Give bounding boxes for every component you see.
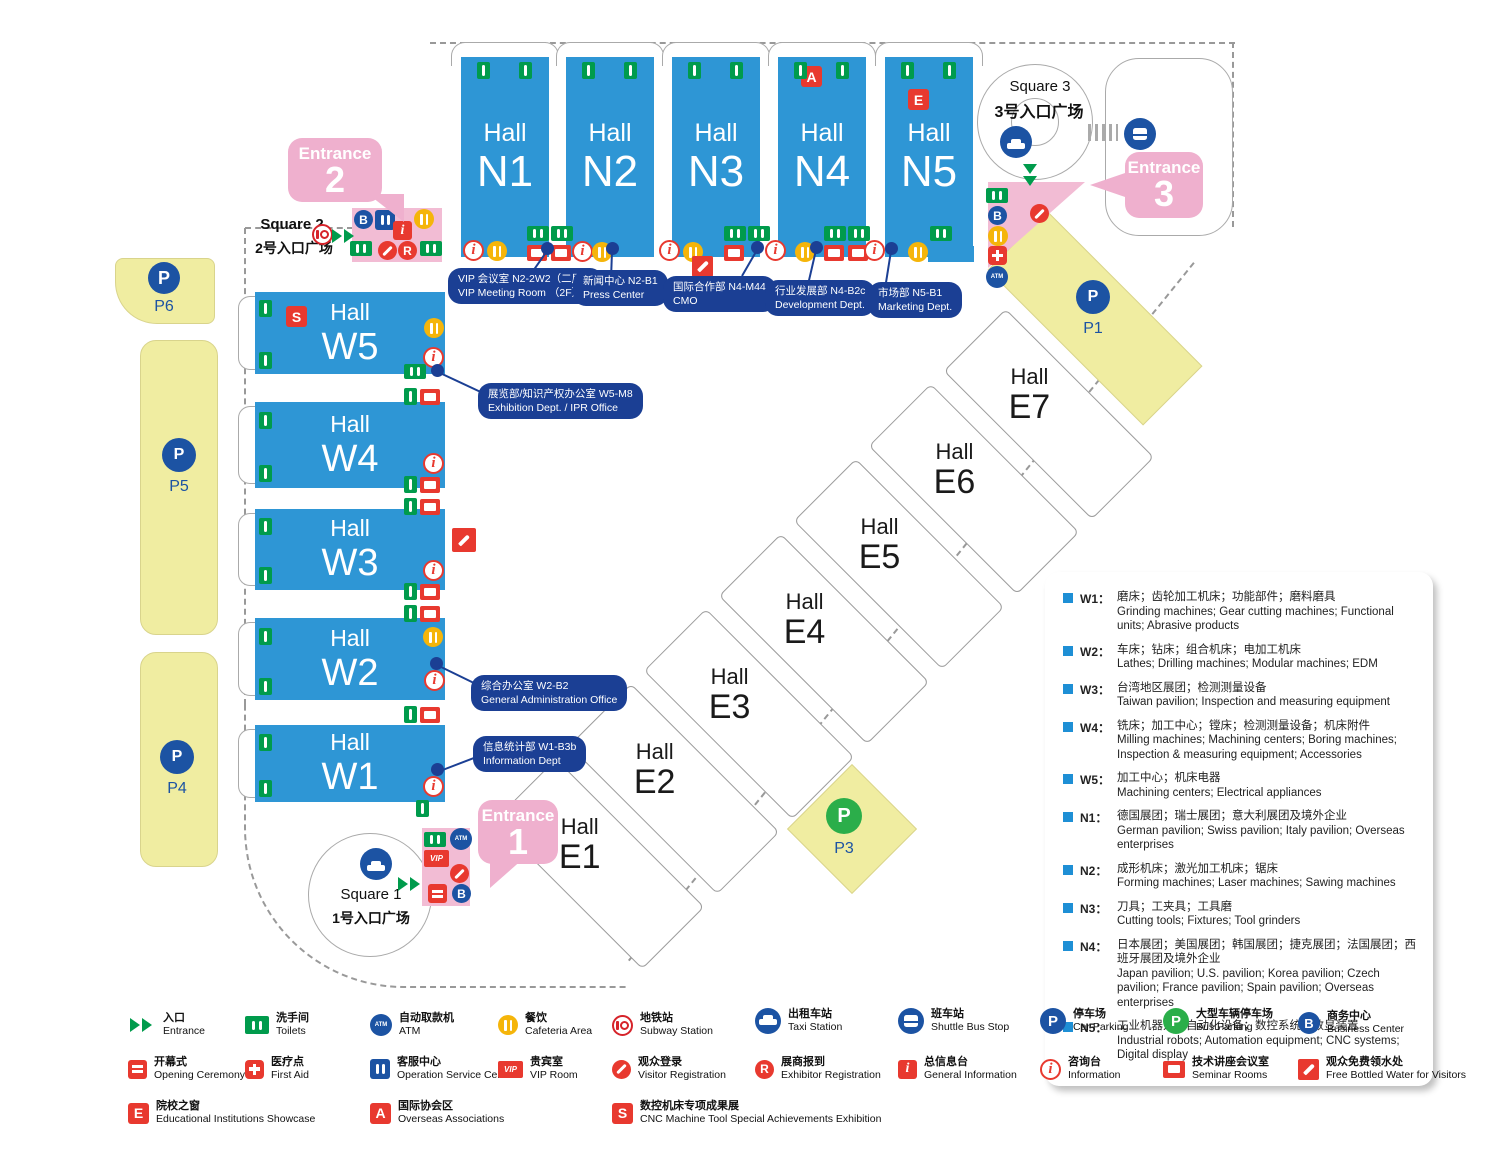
legend-en: Lathes; Drilling machines; Modular machi… xyxy=(1117,658,1378,670)
legend-item-taxi: 出租车站Taxi Station xyxy=(755,1008,842,1034)
hall-code: E7 xyxy=(986,389,1072,425)
leader-line xyxy=(610,251,613,272)
callout-press-center: 新闻中心 N2-B1 Press Center xyxy=(573,270,668,306)
business-center-icon: B xyxy=(452,884,471,903)
legend-text: 成形机床；激光加工机床；锯床Forming machines; Laser ma… xyxy=(1117,862,1396,891)
opening-ceremony-icon xyxy=(428,884,447,903)
entrance2-balloon-tail xyxy=(368,194,404,222)
hall-code: W2 xyxy=(322,652,379,694)
leader-line xyxy=(440,372,481,392)
callout-general-administration-office: 综合办公室 W2-B2 General Administration Offic… xyxy=(471,675,627,711)
legend-entry-w2: W2：车床；钻床；组合机床；电加工机床Lathes; Drilling mach… xyxy=(1063,643,1417,672)
callout-marketing-dept: 市场部 N5-B1 Marketing Dept. xyxy=(868,282,962,318)
legend-zh: 开幕式 xyxy=(154,1056,245,1069)
hall-word: Hall xyxy=(330,729,370,756)
first-aid-icon xyxy=(245,1060,264,1079)
legend-en: Overseas Associations xyxy=(398,1113,504,1126)
callout-en: General Administration Office xyxy=(481,693,617,707)
bus-parking-icon: P xyxy=(1163,1008,1189,1034)
toilets-icon xyxy=(259,300,272,317)
legend-zh: 刀具；工夹具；工具磨 xyxy=(1117,901,1232,913)
legend-en: Opening Ceremony xyxy=(154,1069,245,1082)
hall-code: E2 xyxy=(612,764,698,800)
legend-zh: 贵宾室 xyxy=(530,1056,578,1069)
legend-item-educational: E院校之窗Educational Institutions Showcase xyxy=(128,1100,315,1126)
legend-zh: 总信息台 xyxy=(924,1056,1017,1069)
legend-en: Machining centers; Electrical appliances xyxy=(1117,787,1322,799)
hall-word: Hall xyxy=(588,118,631,148)
information-icon: i xyxy=(424,670,445,691)
legend-item-visitor-registration: 观众登录Visitor Registration xyxy=(612,1056,726,1082)
legend-zh: 咨询台 xyxy=(1068,1056,1121,1069)
legend-item-entrance: 入口Entrance xyxy=(128,1012,205,1038)
legend-en: Visitor Registration xyxy=(638,1069,726,1082)
cafeteria-icon xyxy=(487,241,507,261)
callout-zh: 信息统计部 W1-B3b xyxy=(483,740,576,754)
legend-text: 车床；钻床；组合机床；电加工机床Lathes; Drilling machine… xyxy=(1117,643,1378,672)
hall-code: E6 xyxy=(911,464,997,500)
callout-zh: 综合办公室 W2-B2 xyxy=(481,679,617,693)
toilets-icon xyxy=(724,226,746,241)
parking-label-p6: P6 xyxy=(146,298,182,316)
information-icon: i xyxy=(765,240,786,261)
hall-w5: HallW5 xyxy=(255,292,445,374)
legend-entry-w1: W1：磨床；齿轮加工机床；功能部件；磨料磨具Grinding machines;… xyxy=(1063,590,1417,634)
toilets-icon xyxy=(259,628,272,645)
leader-dot xyxy=(751,241,764,254)
hall-word: Hall xyxy=(762,589,848,614)
visitor-registration-icon xyxy=(612,1060,631,1079)
seminar-rooms-icon xyxy=(724,245,744,261)
parking-icon-p4: P xyxy=(160,740,194,774)
legend-text: 加工中心；机床电器Machining centers; Electrical a… xyxy=(1117,771,1322,800)
legend-zh: 加工中心；机床电器 xyxy=(1117,772,1221,784)
legend-text: 台湾地区展团；检测测量设备Taiwan pavilion; Inspection… xyxy=(1117,681,1390,710)
legend-item-general-information: i总信息台General Information xyxy=(898,1056,1017,1082)
legend-zh: 班车站 xyxy=(931,1008,1009,1021)
legend-en: Shuttle Bus Stop xyxy=(931,1021,1009,1034)
parking-label-p5: P5 xyxy=(160,478,198,496)
business-center-icon: B xyxy=(1298,1012,1320,1034)
hall-word: Hall xyxy=(986,364,1072,389)
entrance-arrows-icon xyxy=(396,876,424,892)
information-icon: i xyxy=(463,240,484,261)
entrance1-balloon: Entrance 1 xyxy=(478,800,558,864)
parking-label-p3: P3 xyxy=(828,840,860,858)
hall-code: N2 xyxy=(582,148,638,196)
legend-en: Business Center xyxy=(1327,1023,1404,1036)
legend-entry-w3: W3：台湾地区展团；检测测量设备Taiwan pavilion; Inspect… xyxy=(1063,681,1417,710)
legend-zh: 停车场 xyxy=(1073,1008,1128,1021)
legend-en: Free Bottled Water for Visitors xyxy=(1326,1069,1466,1082)
legend-item-operation-service: 客服中心Operation Service Centre xyxy=(370,1056,515,1082)
callout-en: Exhibition Dept. / IPR Office xyxy=(488,401,633,415)
toilets-icon xyxy=(404,364,426,379)
toilets-icon xyxy=(424,832,446,847)
legend-item-shuttle-bus: 班车站Shuttle Bus Stop xyxy=(898,1008,1009,1034)
information-icon: i xyxy=(659,240,680,261)
toilets-icon xyxy=(259,567,272,584)
general-information-icon: i xyxy=(393,221,412,240)
toilets-icon xyxy=(519,62,532,79)
legend-text: 德国展团；瑞士展团；意大利展团及境外企业German pavilion; Swi… xyxy=(1117,809,1417,853)
entrance-icon xyxy=(128,1017,156,1033)
entrance-number: 2 xyxy=(288,163,382,197)
toilets-icon xyxy=(930,226,952,241)
legend-en: First Aid xyxy=(271,1069,309,1082)
hall-word: Hall xyxy=(483,118,526,148)
callout-information-dept: 信息统计部 W1-B3b Information Dept xyxy=(473,736,586,772)
callout-en: Information Dept xyxy=(483,754,576,768)
entrance1-balloon-tail xyxy=(490,858,524,888)
legend-entry-n3: N3：刀具；工夹具；工具磨Cutting tools; Fixtures; To… xyxy=(1063,900,1417,929)
hall-code: N1 xyxy=(477,148,533,196)
legend-zh: 大型车辆停车场 xyxy=(1196,1008,1273,1021)
legend-item-subway: 地铁站Subway Station xyxy=(612,1012,713,1038)
callout-zh: 新闻中心 N2-B1 xyxy=(583,274,658,288)
legend-en: Subway Station xyxy=(640,1025,713,1038)
toilets-icon xyxy=(404,476,417,493)
exhibition-floor-plan: P P6 P P5 P P4 P P1 P P3 HallE1 HallE2 H… xyxy=(0,0,1500,1171)
callout-en: Press Center xyxy=(583,288,658,302)
toilets-icon xyxy=(420,241,442,256)
opening-ceremony-icon xyxy=(128,1060,147,1079)
hall-n2: HallN2 xyxy=(566,57,654,257)
legend-item-information: i咨询台Information xyxy=(1040,1056,1121,1082)
bullet-icon xyxy=(1063,684,1073,694)
legend-en: Taiwan pavilion; Inspection and measurin… xyxy=(1117,696,1390,708)
business-center-icon: B xyxy=(988,206,1007,225)
cafeteria-icon xyxy=(908,242,928,262)
legend-zh: 国际协会区 xyxy=(398,1100,504,1113)
toilets-icon xyxy=(477,62,490,79)
toilets-icon xyxy=(404,498,417,515)
toilets-icon xyxy=(848,226,870,241)
parking-icon-p3: P xyxy=(826,798,862,834)
hall-n5: HallN5 xyxy=(885,57,973,257)
hall-word: Hall xyxy=(694,118,737,148)
operation-service-icon xyxy=(370,1059,390,1079)
hall-word: Hall xyxy=(330,515,370,542)
toilets-icon xyxy=(350,241,372,256)
toilets-icon xyxy=(259,780,272,797)
legend-en: Entrance xyxy=(163,1025,205,1038)
shuttle-bus-icon xyxy=(1124,118,1156,150)
legend-entry-n1: N1：德国展团；瑞士展团；意大利展团及境外企业German pavilion; … xyxy=(1063,809,1417,853)
legend-en: Taxi Station xyxy=(788,1021,842,1034)
information-icon: i xyxy=(864,240,885,261)
visitor-registration-icon xyxy=(450,864,469,883)
legend-zh: 地铁站 xyxy=(640,1012,713,1025)
entrance3-balloon: Entrance 3 xyxy=(1125,152,1203,218)
visitor-registration-icon xyxy=(378,241,397,260)
toilets-icon xyxy=(551,226,573,241)
car-parking-icon: P xyxy=(1040,1008,1066,1034)
legend-entry-n4: N4：日本展团；美国展团；韩国展团；捷克展团；法国展团；西班牙展团及境外企业Ja… xyxy=(1063,938,1417,1011)
hall-word: Hall xyxy=(330,625,370,652)
cnc-exhibition-icon: S xyxy=(286,306,307,327)
square1-label-zh: 1号入口广场 xyxy=(318,908,424,928)
legend-zh: 洗手间 xyxy=(276,1012,309,1025)
legend-entry-w4: W4：铣床；加工中心；镗床；检测测量设备；机床附件Milling machine… xyxy=(1063,719,1417,763)
legend-text: 磨床；齿轮加工机床；功能部件；磨料磨具Grinding machines; Ge… xyxy=(1117,590,1417,634)
legend-item-atm: ATM自动取款机ATM xyxy=(370,1012,454,1038)
toilets-icon xyxy=(748,226,770,241)
entrance-arrows-icon xyxy=(1022,162,1038,190)
toilets-icon xyxy=(794,62,807,79)
legend-entry-w5: W5：加工中心；机床电器Machining centers; Electrica… xyxy=(1063,771,1417,800)
legend-code: W3： xyxy=(1080,681,1110,710)
square3-label-zh: 3号入口广场 xyxy=(983,98,1095,122)
vip-room-icon: VIP xyxy=(498,1061,523,1078)
legend-item-overseas-assoc: A国际协会区Overseas Associations xyxy=(370,1100,504,1126)
entrance3-balloon-tail xyxy=(1090,172,1128,198)
legend-zh: 车床；钻床；组合机床；电加工机床 xyxy=(1117,644,1301,656)
toilets-icon xyxy=(416,800,429,817)
free-water-icon xyxy=(1298,1059,1319,1080)
toilets-icon xyxy=(824,226,846,241)
legend-item-free-water: 观众免费领水处Free Bottled Water for Visitors xyxy=(1298,1056,1466,1082)
hall-word: Hall xyxy=(907,118,950,148)
taxi-station-icon xyxy=(755,1008,781,1034)
hall-code: W1 xyxy=(322,756,379,798)
seminar-rooms-icon xyxy=(420,707,440,723)
free-water-icon xyxy=(452,528,476,552)
legend-zh: 德国展团；瑞士展团；意大利展团及境外企业 xyxy=(1117,810,1347,822)
legend-text: 刀具；工夹具；工具磨Cutting tools; Fixtures; Tool … xyxy=(1117,900,1300,929)
overseas-associations-icon: A xyxy=(370,1103,391,1124)
toilets-icon xyxy=(259,352,272,369)
toilets-icon xyxy=(901,62,914,79)
entrance2-balloon: Entrance 2 xyxy=(288,138,382,202)
callout-en: Marketing Dept. xyxy=(878,300,952,314)
visitor-registration-icon xyxy=(1030,204,1049,223)
legend-code: N1： xyxy=(1080,809,1110,853)
legend-zh: 观众免费领水处 xyxy=(1326,1056,1466,1069)
legend-item-first-aid: 医疗点First Aid xyxy=(245,1056,309,1082)
cafeteria-icon xyxy=(424,318,444,338)
bullet-icon xyxy=(1063,941,1073,951)
toilets-icon xyxy=(259,412,272,429)
legend-en: Milling machines; Machining centers; Bor… xyxy=(1117,734,1397,761)
legend-entry-n2: N2：成形机床；激光加工机床；锯床Forming machines; Laser… xyxy=(1063,862,1417,891)
toilets-icon xyxy=(730,62,743,79)
bullet-icon xyxy=(1063,646,1073,656)
hall-code: W3 xyxy=(322,542,379,584)
legend-zh: 院校之窗 xyxy=(156,1100,315,1113)
educational-showcase-icon: E xyxy=(908,89,929,110)
legend-item-bus-parking: P大型车辆停车场Bus Parking xyxy=(1163,1008,1273,1034)
callout-zh: 行业发展部 N4-B2c xyxy=(775,284,865,298)
seminar-rooms-icon xyxy=(1163,1061,1185,1078)
legend-en: General Information xyxy=(924,1069,1017,1082)
callout-zh: 市场部 N5-B1 xyxy=(878,286,952,300)
crosswalk xyxy=(1088,124,1118,141)
hall-code: N5 xyxy=(901,148,957,196)
hall-w4: HallW4 xyxy=(255,402,445,488)
hall-word: Hall xyxy=(800,118,843,148)
legend-zh: 台湾地区展团；检测测量设备 xyxy=(1117,682,1267,694)
callout-en: Development Dept. xyxy=(775,298,865,312)
legend-item-toilets: 洗手间Toilets xyxy=(245,1012,309,1038)
legend-en: Bus Parking xyxy=(1196,1021,1273,1034)
callout-ipr-office: 展览部/知识产权办公室 W5-M8 Exhibition Dept. / IPR… xyxy=(478,383,643,419)
bullet-icon xyxy=(1063,812,1073,822)
seminar-rooms-icon xyxy=(824,245,844,261)
information-icon: i xyxy=(1040,1059,1061,1080)
legend-en: Toilets xyxy=(276,1025,309,1038)
parking-icon-p5: P xyxy=(162,438,196,472)
parking-icon-p6: P xyxy=(148,262,180,294)
bullet-icon xyxy=(1063,774,1073,784)
hall-n5-annex xyxy=(928,246,974,262)
hall-word: Hall xyxy=(837,514,923,539)
legend-zh: 日本展团；美国展团；韩国展团；捷克展团；法国展团；西班牙展团及境外企业 xyxy=(1117,939,1416,966)
legend-en: Educational Institutions Showcase xyxy=(156,1113,315,1126)
legend-en: VIP Room xyxy=(530,1069,578,1082)
atm-icon: ATM xyxy=(450,828,472,850)
hall-word: Hall xyxy=(612,739,698,764)
atm-icon: ATM xyxy=(370,1014,392,1036)
hall-word: Hall xyxy=(330,299,370,326)
legend-en: Grinding machines; Gear cutting machines… xyxy=(1117,606,1394,633)
toilets-icon xyxy=(582,62,595,79)
information-icon: i xyxy=(572,241,593,262)
first-aid-icon xyxy=(988,246,1007,265)
legend-item-cafeteria: 餐饮Cafeteria Area xyxy=(498,1012,592,1038)
legend-code: N2： xyxy=(1080,862,1110,891)
legend-en: Forming machines; Laser machines; Sawing… xyxy=(1117,877,1396,889)
toilets-icon xyxy=(259,518,272,535)
toilets-icon xyxy=(624,62,637,79)
legend-en: German pavilion; Swiss pavilion; Italy p… xyxy=(1117,825,1405,852)
legend-code: W2： xyxy=(1080,643,1110,672)
square3-label-en: Square 3 xyxy=(1000,78,1080,95)
cafeteria-icon xyxy=(414,209,434,229)
free-water-icon xyxy=(692,256,713,277)
legend-code: W1： xyxy=(1080,590,1110,634)
general-information-icon: i xyxy=(898,1060,917,1079)
callout-en: CMO xyxy=(673,294,766,308)
taxi-station-icon xyxy=(1000,126,1032,158)
legend-en: Information xyxy=(1068,1069,1121,1082)
legend-zh: 商务中心 xyxy=(1327,1010,1404,1023)
hall-word: Hall xyxy=(911,439,997,464)
legend-en: Car Parking xyxy=(1073,1021,1128,1034)
legend-text: 铣床；加工中心；镗床；检测测量设备；机床附件Milling machines; … xyxy=(1117,719,1417,763)
legend-code: W5： xyxy=(1080,771,1110,800)
bullet-icon xyxy=(1063,593,1073,603)
parking-label-p4: P4 xyxy=(158,780,196,798)
legend-en: Exhibitor Registration xyxy=(781,1069,881,1082)
seminar-rooms-icon xyxy=(551,245,571,261)
parking-icon-p1: P xyxy=(1076,280,1110,314)
hall-word: Hall xyxy=(687,664,773,689)
shuttle-bus-icon xyxy=(898,1008,924,1034)
bullet-icon xyxy=(1063,903,1073,913)
entrance-number: 3 xyxy=(1125,177,1203,211)
legend-item-vip-room: VIP贵宾室VIP Room xyxy=(498,1056,578,1082)
toilets-icon xyxy=(404,605,417,622)
hall-w3: HallW3 xyxy=(255,509,445,590)
callout-zh: 展览部/知识产权办公室 W5-M8 xyxy=(488,387,633,401)
legend-zh: 医疗点 xyxy=(271,1056,309,1069)
callout-cmo: 国际合作部 N4-M44 CMO xyxy=(663,276,776,312)
seminar-rooms-icon xyxy=(420,584,440,600)
legend-text: 日本展团；美国展团；韩国展团；捷克展团；法国展团；西班牙展团及境外企业Japan… xyxy=(1117,938,1417,1011)
callout-zh: 国际合作部 N4-M44 xyxy=(673,280,766,294)
legend-en: Cafeteria Area xyxy=(525,1025,592,1038)
legend-item-business-center: B商务中心Business Center xyxy=(1298,1010,1404,1036)
callout-development-dept: 行业发展部 N4-B2c Development Dept. xyxy=(765,280,875,316)
cafeteria-icon xyxy=(988,226,1008,246)
toilets-icon xyxy=(986,188,1008,203)
information-icon: i xyxy=(423,560,444,581)
legend-code: N3： xyxy=(1080,900,1110,929)
legend-zh: 展商报到 xyxy=(781,1056,881,1069)
hall-code: E3 xyxy=(687,689,773,725)
information-icon: i xyxy=(423,453,444,474)
exhibitor-registration-icon: R xyxy=(398,241,417,260)
bullet-icon xyxy=(1063,865,1073,875)
legend-en: Japan pavilion; U.S. pavilion; Korea pav… xyxy=(1117,968,1380,1009)
hall-w1: HallW1 xyxy=(255,725,445,802)
toilets-icon xyxy=(259,678,272,695)
information-icon: i xyxy=(423,776,444,797)
hall-w2: HallW2 xyxy=(255,618,445,700)
educational-showcase-icon: E xyxy=(128,1103,149,1124)
legend-code: W4： xyxy=(1080,719,1110,763)
entrance-number: 1 xyxy=(478,825,558,859)
subway-station-icon xyxy=(612,1015,633,1036)
toilets-icon xyxy=(259,465,272,482)
toilets-icon xyxy=(245,1016,269,1034)
bullet-icon xyxy=(1063,722,1073,732)
legend-en: Seminar Rooms xyxy=(1192,1069,1269,1082)
legend-zh: 入口 xyxy=(163,1012,205,1025)
taxi-station-icon xyxy=(360,848,392,880)
cafeteria-icon xyxy=(498,1015,518,1035)
hall-code: W4 xyxy=(322,438,379,480)
toilets-icon xyxy=(527,226,549,241)
legend-code: N4： xyxy=(1080,938,1110,1011)
legend-zh: 观众登录 xyxy=(638,1056,726,1069)
legend-en: Cutting tools; Fixtures; Tool grinders xyxy=(1117,915,1300,927)
legend-zh: 数控机床专项成果展 xyxy=(640,1100,881,1113)
hall-n3: HallN3 xyxy=(672,57,760,257)
seminar-rooms-icon xyxy=(420,477,440,493)
legend-en: ATM xyxy=(399,1025,454,1038)
legend-zh: 餐饮 xyxy=(525,1012,592,1025)
seminar-rooms-icon xyxy=(420,606,440,622)
legend-item-seminar-rooms: 技术讲座会议室Seminar Rooms xyxy=(1163,1056,1269,1082)
toilets-icon xyxy=(259,734,272,751)
toilets-icon xyxy=(404,388,417,405)
atm-icon: ATM xyxy=(986,266,1008,288)
legend-item-car-parking: P停车场Car Parking xyxy=(1040,1008,1128,1034)
hall-word: Hall xyxy=(330,411,370,438)
legend-zh: 铣床；加工中心；镗床；检测测量设备；机床附件 xyxy=(1117,720,1370,732)
legend-item-cnc-exhibition: S数控机床专项成果展CNC Machine Tool Special Achie… xyxy=(612,1100,881,1126)
hall-code: N4 xyxy=(794,148,850,196)
hall-code: E5 xyxy=(837,539,923,575)
legend-zh: 成形机床；激光加工机床；锯床 xyxy=(1117,863,1278,875)
legend-zh: 自动取款机 xyxy=(399,1012,454,1025)
exhibitor-registration-icon: R xyxy=(755,1060,774,1079)
seminar-rooms-icon xyxy=(420,389,440,405)
legend-zh: 出租车站 xyxy=(788,1008,842,1021)
toilets-icon xyxy=(943,62,956,79)
